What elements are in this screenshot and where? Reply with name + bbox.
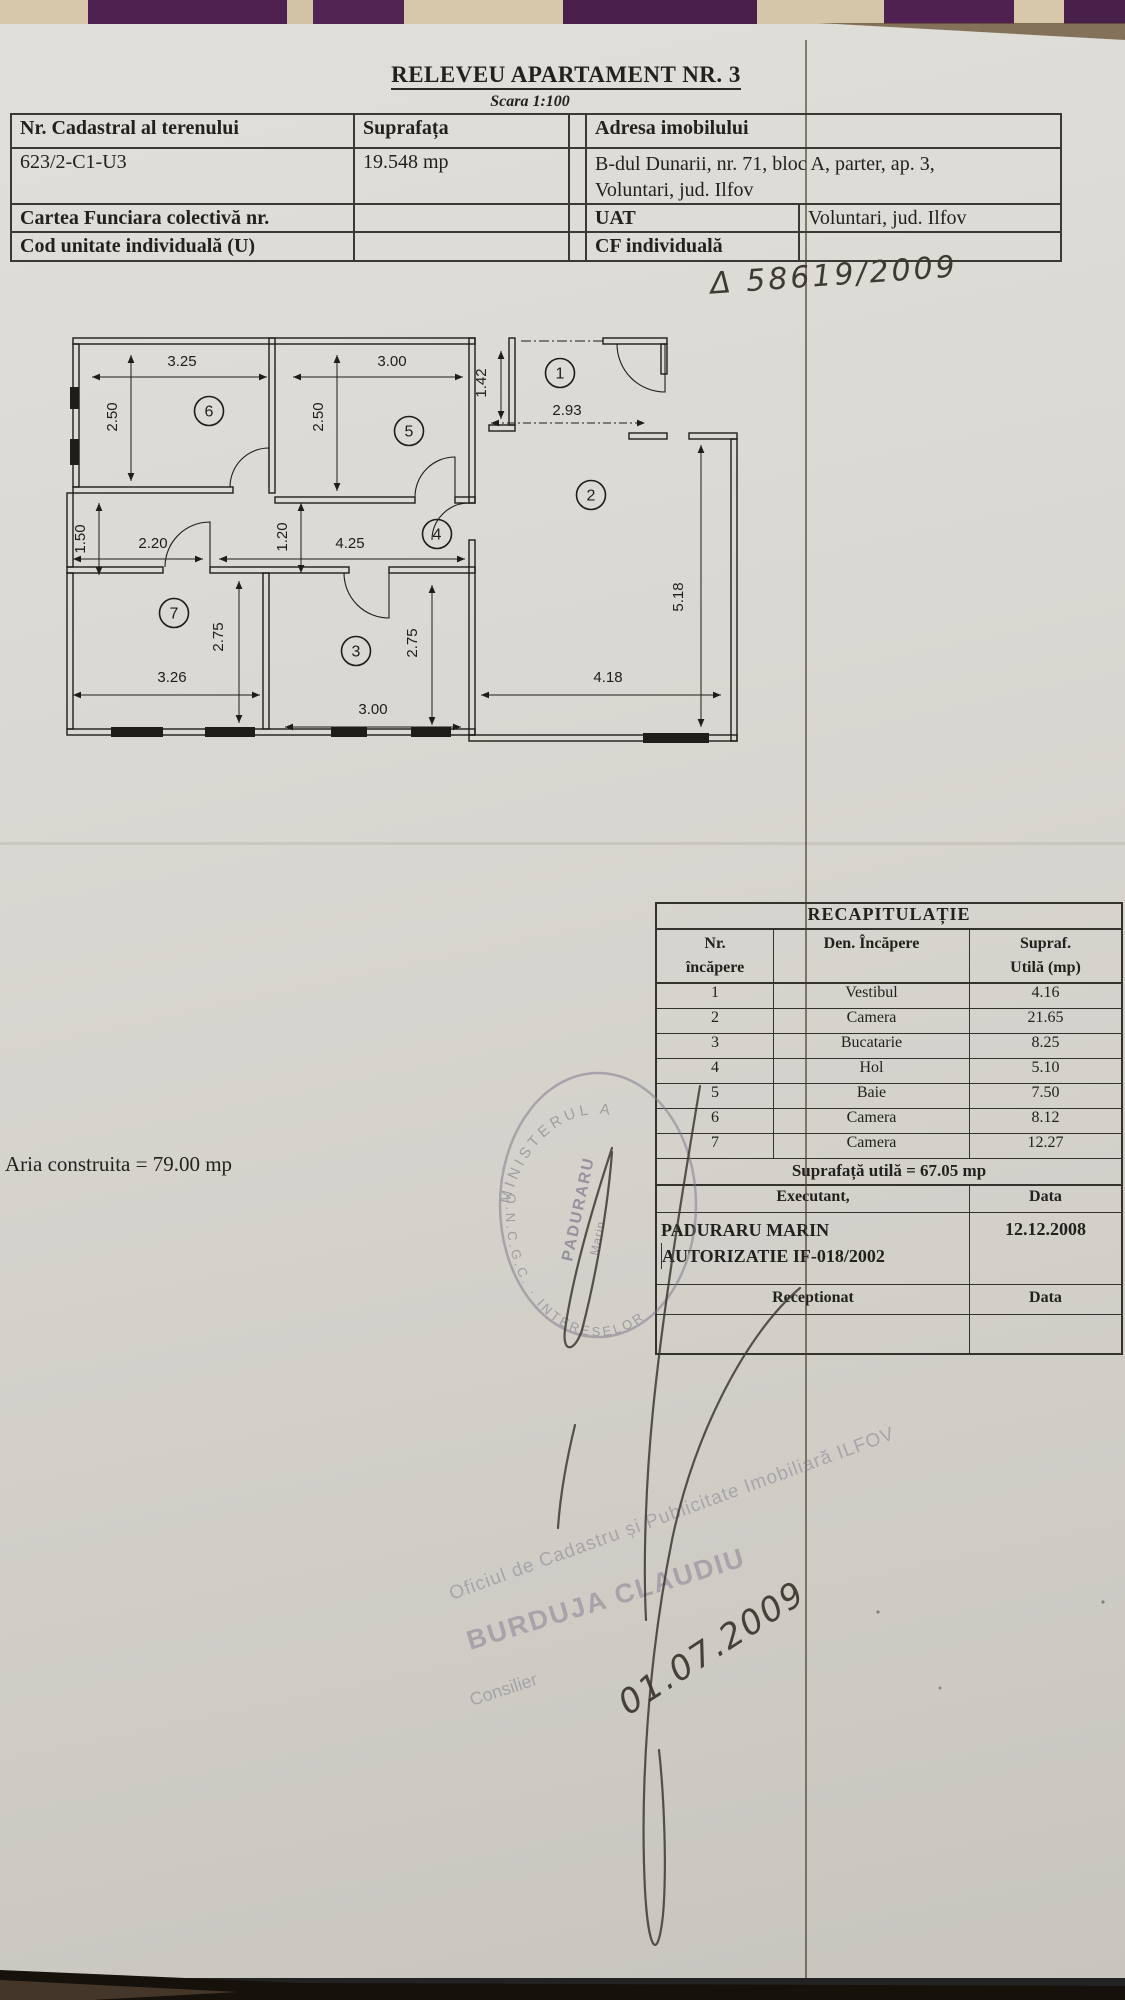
- dim-label: 1.42: [473, 368, 490, 397]
- recap-cell-area: 5.10: [969, 1059, 1121, 1083]
- room-number: 6: [205, 404, 214, 421]
- room-numbers: 1234567: [160, 359, 606, 666]
- recap-rows: 1Vestibul4.162Camera21.653Bucatarie8.254…: [657, 984, 1121, 1159]
- recap-cell-area: 8.12: [969, 1109, 1121, 1133]
- recap-cell-nr: 5: [657, 1084, 773, 1108]
- executant-label: Executant,: [657, 1186, 969, 1212]
- dim-label: 4.18: [593, 669, 622, 686]
- cod-unitate-label: Cod unitate individuală (U): [10, 233, 355, 262]
- recap-total: Suprafață utilă = 67.05 mp: [657, 1159, 1121, 1186]
- room-number: 7: [170, 606, 179, 623]
- executant-content-row: PADURARU MARIN AUTORIZATIE IF-018/2002 1…: [657, 1213, 1121, 1285]
- recap-col3-header: Supraf. Utilă (mp): [969, 930, 1121, 982]
- dim-label: 3.00: [358, 701, 387, 718]
- recap-cell-nr: 4: [657, 1059, 773, 1083]
- dim-label: 2.50: [310, 402, 327, 431]
- recap-cell-name: Bucatarie: [773, 1034, 969, 1058]
- windows: [70, 387, 709, 743]
- dim-label: 2.93: [552, 402, 581, 419]
- horizontal-crease: [0, 842, 1125, 845]
- recap-cell-nr: 3: [657, 1034, 773, 1058]
- cadastral-label: Nr. Cadastral al terenului: [10, 113, 355, 149]
- scale-note: Scara 1:100: [430, 93, 630, 111]
- dim-label: 3.25: [167, 353, 196, 370]
- adresa-label: Adresa imobilului: [585, 113, 1062, 149]
- cadastral-value: 623/2-C1-U3: [10, 149, 355, 205]
- aria-construita-note: Aria construita = 79.00 mp: [5, 1152, 232, 1177]
- recap-cell-area: 12.27: [969, 1134, 1121, 1158]
- receptionat-empty-left: [657, 1315, 969, 1353]
- recap-col1-header: Nr. încăpere: [657, 930, 773, 982]
- doors: [165, 341, 665, 618]
- floor-plan: 3.253.002.932.204.253.263.004.182.502.50…: [55, 325, 755, 770]
- room-number: 2: [587, 488, 596, 505]
- recap-cell-nr: 6: [657, 1109, 773, 1133]
- recap-table: RECAPITULAȚIE Nr. încăpere Den. Încăpere…: [655, 902, 1123, 1355]
- recap-cell-name: Camera: [773, 1009, 969, 1033]
- executant-data-label: Data: [969, 1186, 1121, 1212]
- recap-cell-name: Camera: [773, 1134, 969, 1158]
- adresa-value: B-dul Dunarii, nr. 71, bloc A, parter, a…: [585, 149, 1062, 205]
- recap-cell-nr: 7: [657, 1134, 773, 1158]
- receptionat-empty-right: [969, 1315, 1121, 1353]
- dim-label: 2.20: [138, 535, 167, 552]
- cod-unitate-value: [355, 233, 570, 262]
- cadastral-info-table: Nr. Cadastral al terenului Suprafața Adr…: [10, 113, 1062, 262]
- uat-value: Voluntari, jud. Ilfov: [800, 205, 1062, 233]
- recap-cell-area: 21.65: [969, 1009, 1121, 1033]
- recap-cell-nr: 1: [657, 984, 773, 1008]
- suprafata-label: Suprafața: [355, 113, 570, 149]
- recap-row: 4Hol5.10: [657, 1059, 1121, 1084]
- dim-label: 4.25: [335, 535, 364, 552]
- recap-cell-name: Camera: [773, 1109, 969, 1133]
- dim-label: 1.20: [274, 522, 291, 551]
- dim-label: 1.50: [72, 524, 89, 553]
- recap-cell-name: Hol: [773, 1059, 969, 1083]
- table-gap: [570, 205, 585, 233]
- dim-label: 5.18: [670, 582, 687, 611]
- dim-label: 3.00: [377, 353, 406, 370]
- receptionat-label: Receptionat: [657, 1285, 969, 1314]
- executant-authorization: AUTORIZATIE IF-018/2002: [661, 1243, 969, 1269]
- dimension-annotations: 3.253.002.932.204.253.263.004.182.502.50…: [72, 351, 721, 727]
- table-gap: [570, 113, 585, 149]
- receptionat-row: Receptionat Data: [657, 1285, 1121, 1315]
- dim-label: 2.75: [210, 622, 227, 651]
- table-gap: [570, 233, 585, 262]
- executant-date: 12.12.2008: [969, 1213, 1121, 1284]
- adresa-line1: B-dul Dunarii, nr. 71, bloc A, parter, a…: [595, 151, 1052, 177]
- recap-cell-area: 7.50: [969, 1084, 1121, 1108]
- receptionat-data-label: Data: [969, 1285, 1121, 1314]
- room-number: 4: [433, 527, 442, 544]
- room-number: 3: [352, 644, 361, 661]
- room-number: 1: [556, 366, 565, 383]
- executant-name: PADURARU MARIN: [661, 1217, 969, 1243]
- dim-label: 3.26: [157, 669, 186, 686]
- recap-row: 7Camera12.27: [657, 1134, 1121, 1159]
- recap-cell-area: 4.16: [969, 984, 1121, 1008]
- dim-label: 2.50: [104, 402, 121, 431]
- carte-funciara-label: Cartea Funciara colectivă nr.: [10, 205, 355, 233]
- document-title: RELEVEU APARTAMENT NR. 3: [370, 62, 762, 88]
- executant-header-row: Executant, Data: [657, 1186, 1121, 1213]
- recap-col2-header: Den. Încăpere: [773, 930, 969, 982]
- adresa-line2: Voluntari, jud. Ilfov: [595, 177, 1052, 203]
- recap-row: 2Camera21.65: [657, 1009, 1121, 1034]
- fabric-background-top: [0, 0, 1125, 24]
- recap-row: 1Vestibul4.16: [657, 984, 1121, 1009]
- recap-cell-area: 8.25: [969, 1034, 1121, 1058]
- recap-row: 6Camera8.12: [657, 1109, 1121, 1134]
- scanned-document-page: RELEVEU APARTAMENT NR. 3 Scara 1:100 Nr.…: [0, 0, 1125, 2000]
- recap-row: 3Bucatarie8.25: [657, 1034, 1121, 1059]
- executant-name-auth: PADURARU MARIN AUTORIZATIE IF-018/2002: [657, 1213, 969, 1284]
- uat-label: UAT: [585, 205, 800, 233]
- vertical-fold-line: [805, 40, 807, 1978]
- table-gap: [570, 149, 585, 205]
- receptionat-empty-row: [657, 1315, 1121, 1353]
- recap-cell-nr: 2: [657, 1009, 773, 1033]
- cf-label: CF individuală: [585, 233, 800, 262]
- recap-cell-name: Vestibul: [773, 984, 969, 1008]
- room-number: 5: [405, 424, 414, 441]
- suprafata-value: 19.548 mp: [355, 149, 570, 205]
- carte-funciara-value: [355, 205, 570, 233]
- recap-header-row: Nr. încăpere Den. Încăpere Supraf. Utilă…: [657, 930, 1121, 984]
- dim-label: 2.75: [404, 628, 421, 657]
- recap-row: 5Baie7.50: [657, 1084, 1121, 1109]
- recap-cell-name: Baie: [773, 1084, 969, 1108]
- recap-title: RECAPITULAȚIE: [657, 904, 1121, 930]
